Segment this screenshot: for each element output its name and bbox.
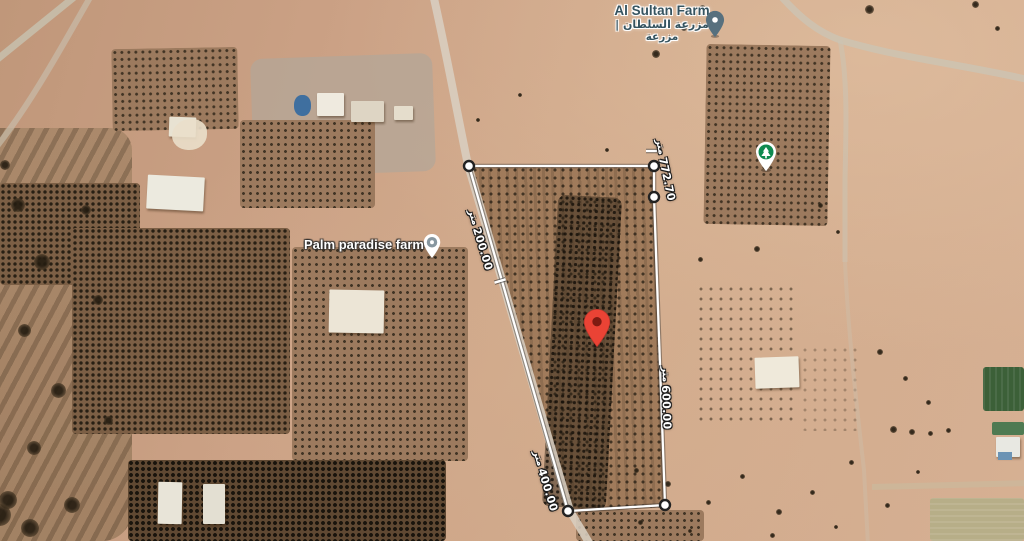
red-pin-icon — [584, 309, 610, 346]
satellite-map[interactable]: متر 772.70 متر 200.00 متر 600.00 متر 400… — [0, 0, 1024, 541]
place-name: Palm paradise farm — [304, 237, 424, 252]
measurement-polygon — [469, 166, 665, 511]
al-sultan-farm-pin[interactable] — [705, 10, 725, 38]
unit-text: متر — [653, 138, 667, 156]
palm-paradise-farm-label[interactable]: Palm paradise farm — [300, 237, 428, 252]
measurement-vertex[interactable] — [649, 192, 659, 202]
pin-dot — [712, 17, 718, 23]
pin-inner-dot — [592, 317, 601, 326]
measurement-overlay — [0, 0, 1024, 541]
poi-pin-icon — [706, 11, 724, 37]
palm-paradise-farm-pin[interactable] — [423, 233, 441, 259]
dropped-pin[interactable] — [583, 308, 611, 348]
measurement-vertex[interactable] — [464, 161, 474, 171]
measurement-polygon-outline — [469, 166, 665, 511]
measurement-vertex[interactable] — [563, 506, 573, 516]
measurement-vertex[interactable] — [660, 500, 670, 510]
pin-dot — [430, 240, 434, 244]
distance-value: 600.00 — [659, 385, 674, 430]
unit-text: متر — [659, 366, 671, 382]
distance-label-600: متر 600.00 — [658, 366, 673, 429]
park-poi-pin[interactable] — [755, 141, 777, 172]
